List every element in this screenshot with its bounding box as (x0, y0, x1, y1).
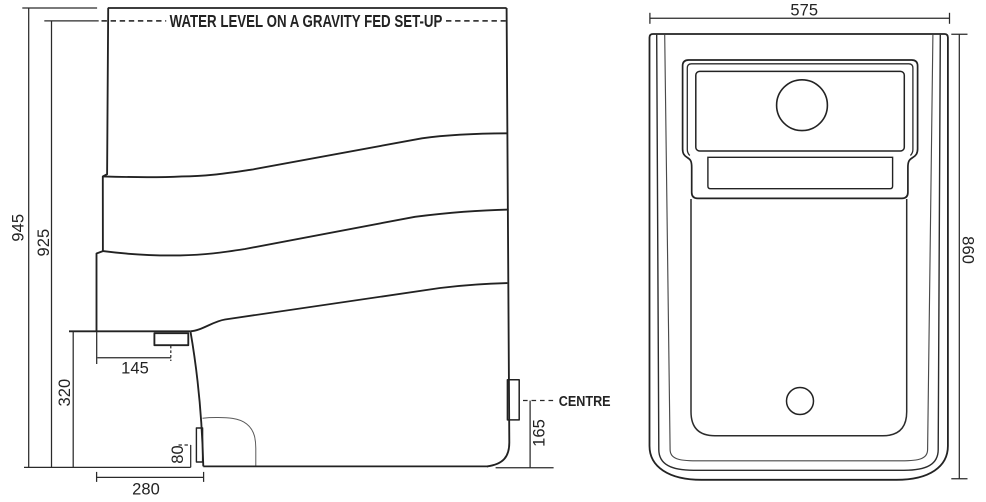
svg-text:945: 945 (10, 214, 28, 242)
svg-text:145: 145 (121, 360, 149, 378)
svg-text:WATER LEVEL ON A GRAVITY FED S: WATER LEVEL ON A GRAVITY FED SET-UP (170, 12, 443, 31)
svg-text:280: 280 (132, 481, 160, 499)
svg-text:925: 925 (35, 229, 53, 257)
svg-text:860: 860 (959, 236, 977, 264)
svg-text:575: 575 (790, 2, 818, 20)
svg-text:165: 165 (530, 419, 548, 447)
svg-text:CENTRE: CENTRE (559, 392, 611, 409)
svg-text:320: 320 (56, 379, 74, 407)
svg-text:80: 80 (169, 445, 187, 464)
